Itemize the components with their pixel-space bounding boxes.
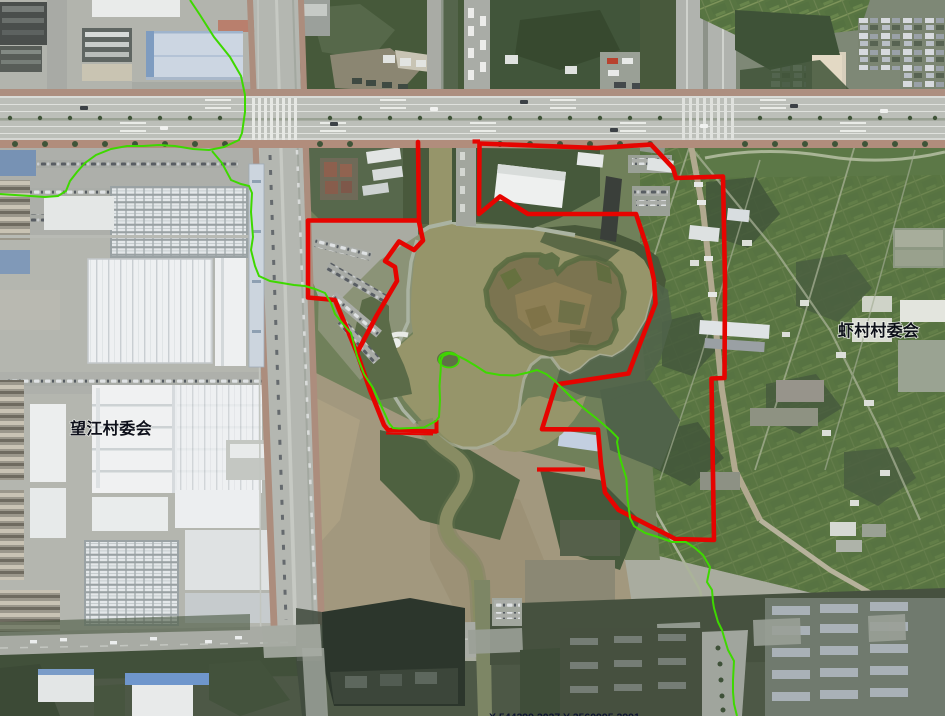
svg-text:X 544299.2027 Y 2560995.2991: X 544299.2027 Y 2560995.2991 <box>489 712 640 716</box>
svg-text:望江村委会: 望江村委会 <box>70 419 152 438</box>
svg-text:虾村村委会: 虾村村委会 <box>838 321 919 340</box>
